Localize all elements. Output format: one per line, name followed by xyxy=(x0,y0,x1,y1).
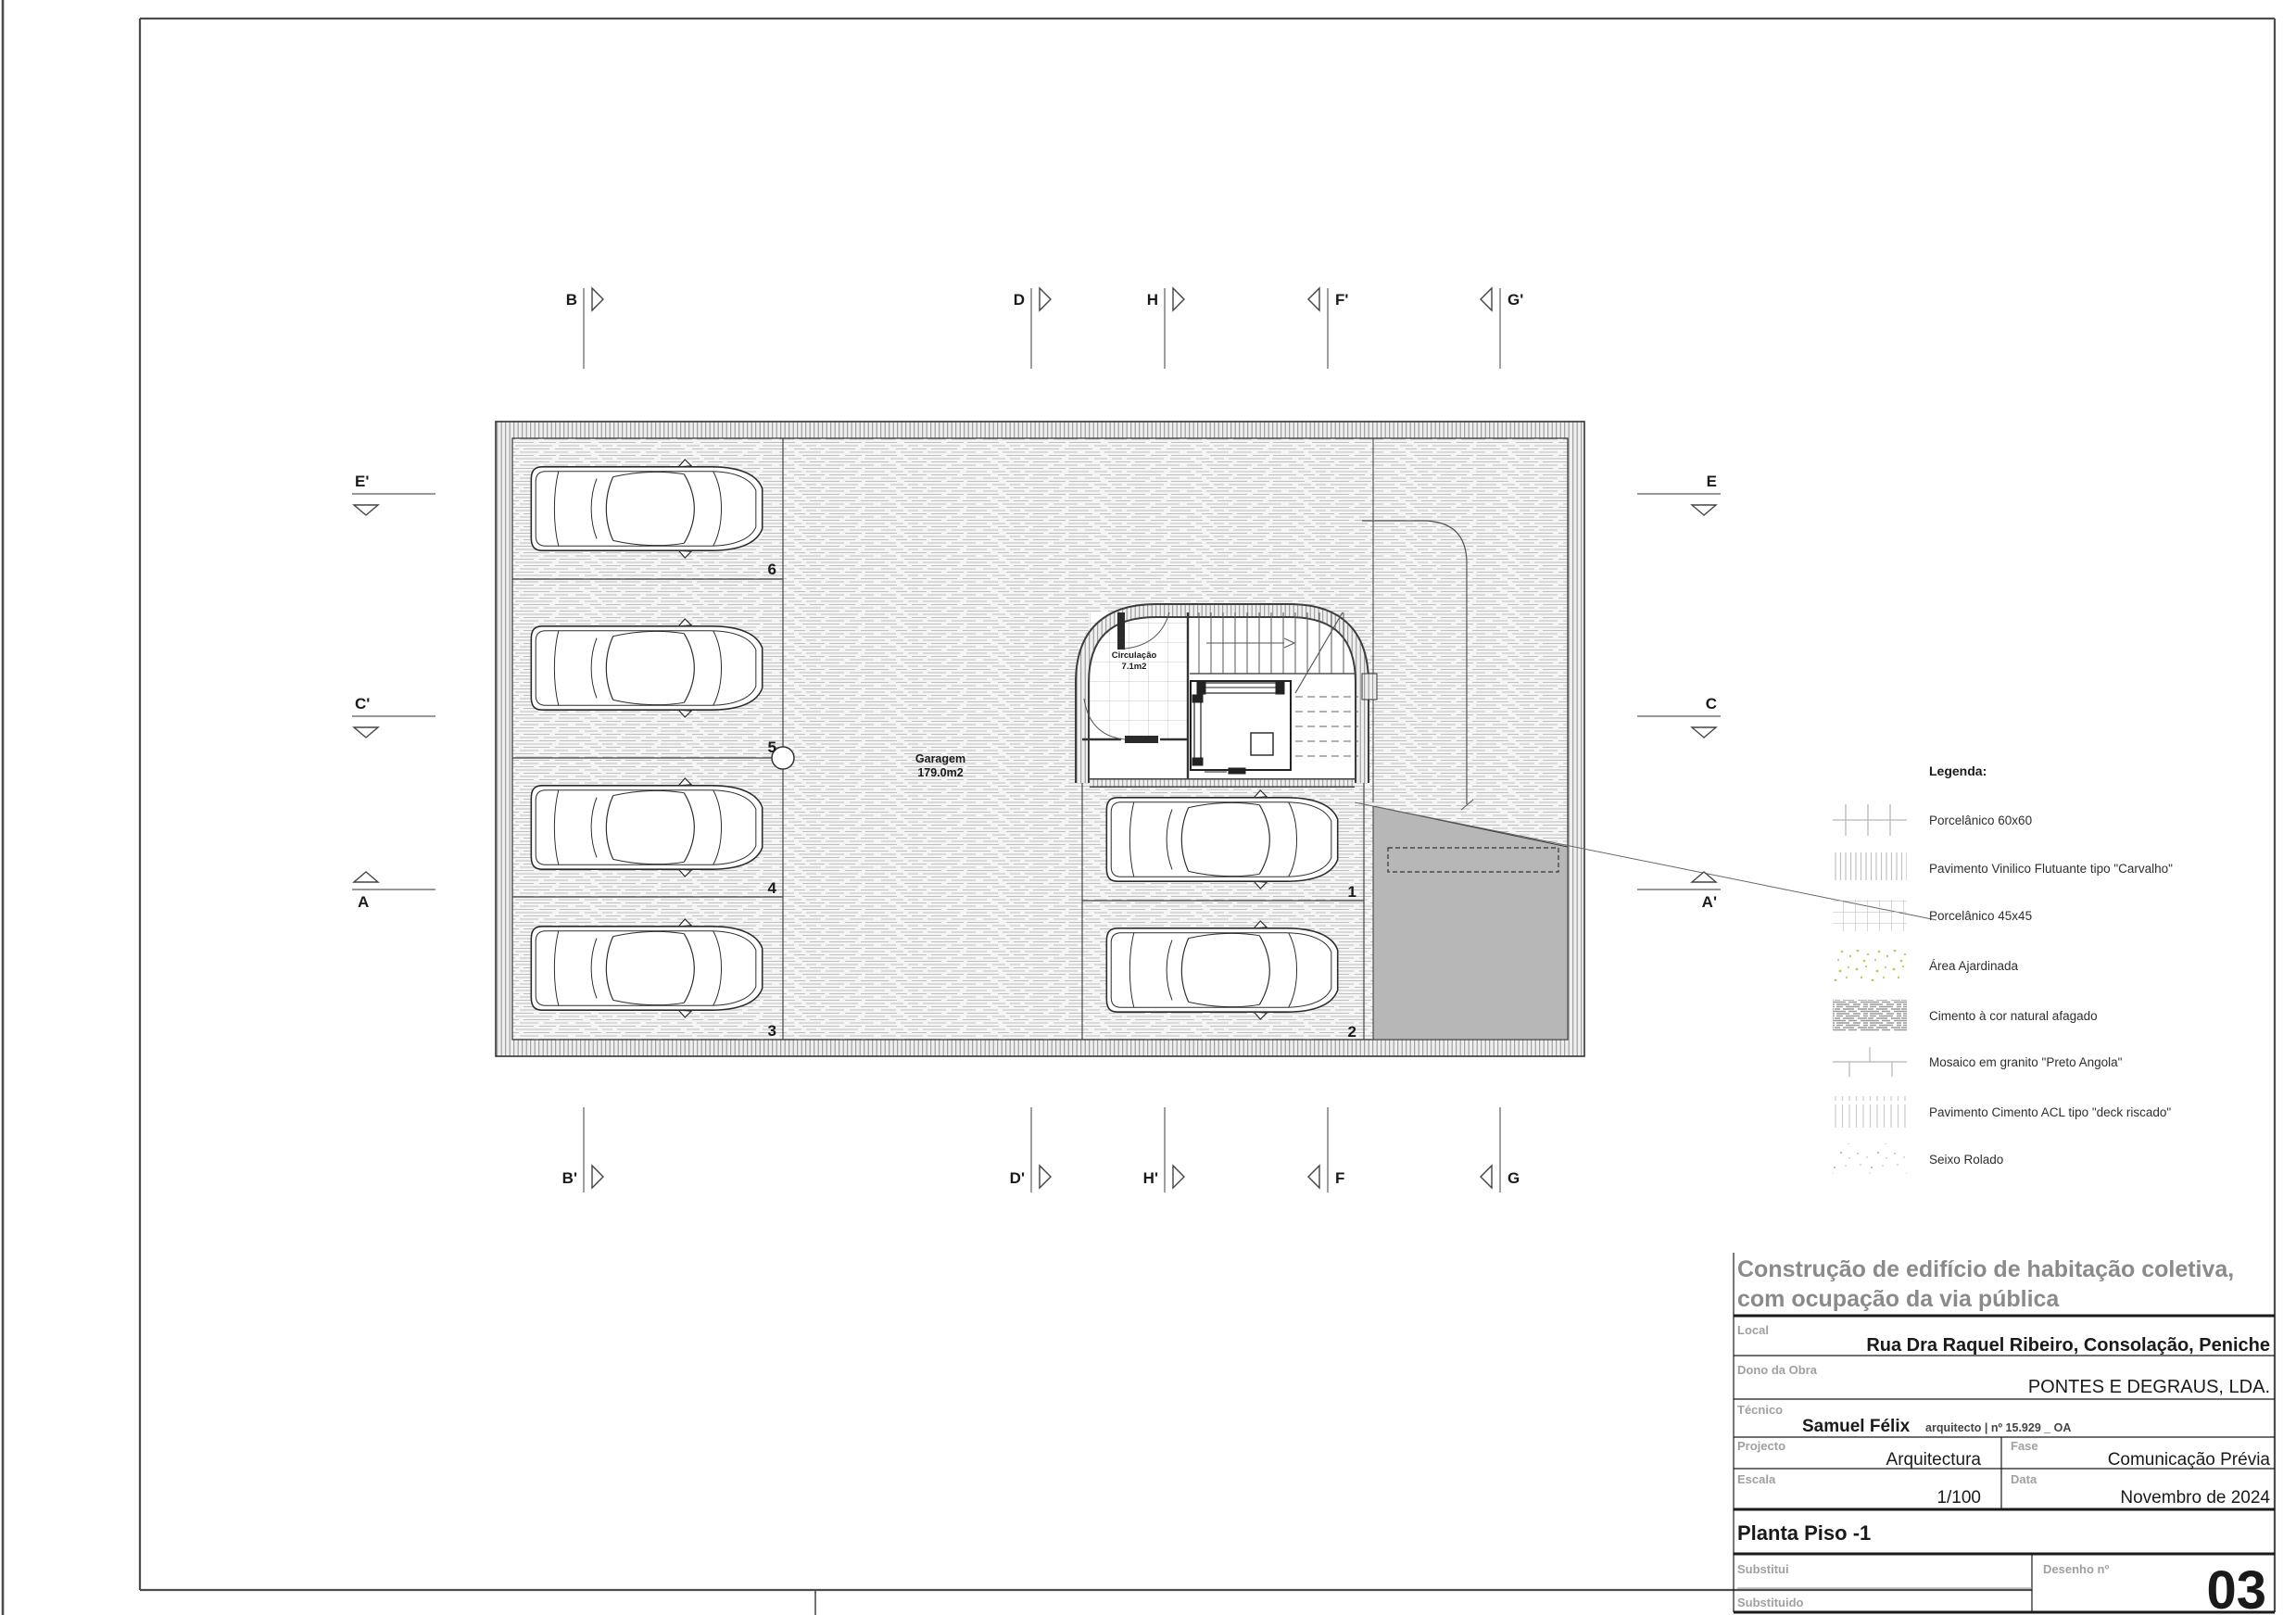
dono-value: PONTES E DEGRAUS, LDA. xyxy=(2028,1377,2270,1397)
fase-label: Fase xyxy=(2011,1439,2038,1453)
tecnico-label: Técnico xyxy=(1737,1403,1783,1417)
circulation-area-label: 7.1m2 xyxy=(1122,662,1147,672)
projecto-value: Arquitectura xyxy=(1886,1450,1982,1470)
desenho-label: Desenho nº xyxy=(2043,1562,2109,1576)
section-marker-label: B' xyxy=(562,1169,577,1187)
legend-item-label: Seixo Rolado xyxy=(1929,1153,2003,1167)
legend-swatch-cimento xyxy=(1833,1000,1907,1031)
car-icon xyxy=(531,619,762,717)
car-icon xyxy=(531,778,762,877)
tecnico-value: Samuel Félix xyxy=(1802,1417,1911,1436)
garage-label: Garagem xyxy=(915,752,965,765)
stall-number: 6 xyxy=(768,561,776,578)
car-icon xyxy=(531,919,762,1017)
car-icon xyxy=(531,460,762,558)
drawing-title: Planta Piso -1 xyxy=(1737,1521,1871,1545)
stall-number: 5 xyxy=(768,738,776,756)
stall-number: 3 xyxy=(768,1022,776,1040)
data-value: Novembro de 2024 xyxy=(2120,1488,2270,1508)
legend-title: Legenda: xyxy=(1929,763,1987,778)
fase-value: Comunicação Prévia xyxy=(2108,1450,2271,1470)
drawing-sheet: 6 5 4 3 1 2 Garagem 179.0m2 xyxy=(0,0,2296,1615)
stall-number: 2 xyxy=(1348,1023,1356,1041)
legend-swatch-porcelanico-60x60 xyxy=(1833,804,1907,836)
legend-swatch-area-ajardinada xyxy=(1833,950,1907,981)
legend-item-label: Cimento à cor natural afagado xyxy=(1929,1009,2098,1023)
local-label: Local xyxy=(1737,1323,1769,1337)
legend-item-label: Pavimento Cimento ACL tipo "deck riscado… xyxy=(1929,1105,2171,1119)
wall-pilaster xyxy=(1362,674,1377,700)
stall-number: 1 xyxy=(1348,883,1356,901)
section-marker-label: E xyxy=(1707,473,1717,490)
plan-canvas: 6 5 4 3 1 2 Garagem 179.0m2 xyxy=(0,0,2296,1615)
legend-swatch-porcelanico-45x45 xyxy=(1833,900,1907,931)
legend-swatch-granito xyxy=(1833,1047,1907,1077)
section-marker-label: E' xyxy=(355,473,369,490)
local-value: Rua Dra Raquel Ribeiro, Consolação, Peni… xyxy=(1866,1335,2270,1356)
legend-swatch-vinilico xyxy=(1833,852,1907,884)
projecto-label: Projecto xyxy=(1737,1439,1785,1453)
legend-item-label: Pavimento Vinilico Flutuante tipo "Carva… xyxy=(1929,862,2173,876)
section-marker-label: D xyxy=(1014,291,1025,309)
legend-item-label: Mosaico em granito "Preto Angola" xyxy=(1929,1055,2123,1069)
escala-value: 1/100 xyxy=(1936,1488,1981,1508)
floor-plan: 6 5 4 3 1 2 Garagem 179.0m2 xyxy=(496,422,1936,1056)
project-title-line2: com ocupação da via pública xyxy=(1737,1286,2060,1312)
section-marker-label: G' xyxy=(1508,291,1523,309)
section-marker-label: H' xyxy=(1143,1169,1158,1187)
stair-core: Circulação 7.1m2 xyxy=(1082,611,1377,783)
garage-area-label: 179.0m2 xyxy=(917,766,963,779)
stall-number: 4 xyxy=(768,879,777,897)
project-title-line1: Construção de edifício de habitação cole… xyxy=(1737,1256,2234,1282)
car-icon xyxy=(1106,790,1337,889)
substituido-label: Substituido xyxy=(1737,1596,1804,1609)
circulation-label: Circulação xyxy=(1112,650,1157,661)
legend-item-label: Porcelânico 45x45 xyxy=(1929,909,2032,923)
section-marker-label: F xyxy=(1335,1169,1344,1187)
section-marker-label: D' xyxy=(1010,1169,1025,1187)
section-marker-label: B xyxy=(566,291,577,309)
section-marker-label: F' xyxy=(1335,291,1348,309)
substitui-label: Substitui xyxy=(1737,1562,1789,1576)
data-label: Data xyxy=(2011,1472,2037,1486)
legend-item-label: Porcelânico 60x60 xyxy=(1929,814,2032,827)
section-marker-label: H xyxy=(1147,291,1158,309)
garage-label-group: Garagem 179.0m2 xyxy=(915,752,965,779)
legend-item-label: Área Ajardinada xyxy=(1929,959,2019,973)
escala-label: Escala xyxy=(1737,1472,1776,1486)
dono-label: Dono da Obra xyxy=(1737,1363,1818,1377)
section-marker-label: A xyxy=(358,893,369,911)
section-marker-label: C' xyxy=(355,695,370,713)
section-marker-label: A' xyxy=(1702,893,1717,911)
section-marker-label: G xyxy=(1508,1169,1520,1187)
section-marker-label: C xyxy=(1706,695,1717,713)
legend-swatch-seixo xyxy=(1833,1143,1907,1175)
desenho-number: 03 xyxy=(2206,1560,2266,1615)
legend-swatch-cimento-acl xyxy=(1833,1096,1907,1128)
title-block: Construção de edifício de habitação cole… xyxy=(1734,1253,2275,1615)
car-icon xyxy=(1106,921,1337,1019)
tecnico-suffix: arquitecto | nº 15.929 _ OA xyxy=(1925,1421,2071,1434)
legend: Legenda: Porcelânico 60x60 Pavimento Vin… xyxy=(1833,763,2173,1175)
